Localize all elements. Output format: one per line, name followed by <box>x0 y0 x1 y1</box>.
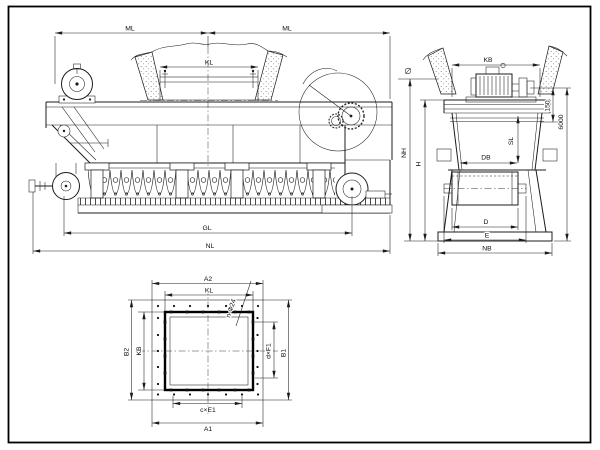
holes-callout: n-Φ24 <box>225 298 238 318</box>
dim-label-a2: A2 <box>204 276 213 283</box>
drawing-border <box>9 7 591 443</box>
dim-label-kb-plan: KB <box>136 346 143 356</box>
dim-label-sl: SL <box>508 137 515 146</box>
hopper-side <box>131 43 287 100</box>
top-extension-lines <box>152 280 263 312</box>
dim-label-gl: GL <box>202 225 211 232</box>
dim-label-ml-right: ML <box>282 26 292 33</box>
dim-label-dxf1: d×F1 <box>266 343 273 359</box>
dim-label-nl: NL <box>206 243 215 250</box>
dim-label-kl-plan: KL <box>205 288 214 295</box>
dim-label-b2: B2 <box>124 348 131 357</box>
eyebolt-icon <box>501 63 505 67</box>
ml-extension-lines <box>55 36 390 99</box>
kl-extension-lines <box>160 70 258 77</box>
end-view: KB SL DB <box>398 46 571 256</box>
motor <box>466 63 536 102</box>
dim-label-ml-left: ML <box>125 26 135 33</box>
skirt-board <box>160 70 258 100</box>
dim-label-a1: A1 <box>204 426 213 433</box>
plan-view: A2 KL B2 KB d×F1 B1 c×E1 A1 n-Φ24 <box>124 276 293 433</box>
dim-label-nb: NB <box>482 246 492 253</box>
dim-label-db: DB <box>481 155 491 162</box>
dim-label-kb: KB <box>483 57 493 64</box>
drive-sprocket <box>299 68 377 151</box>
nb-extension-lines <box>438 243 552 256</box>
drawing-page: ML ML KL <box>0 0 600 450</box>
dim-label-h: H <box>416 161 423 166</box>
left-extension-lines <box>128 300 165 400</box>
dim-label-nh: NH <box>401 148 408 158</box>
machine-body-end <box>437 100 557 170</box>
dim-label-150: 150 <box>545 100 552 112</box>
garland-idlers <box>88 168 335 198</box>
side-view: ML ML KL <box>29 26 392 255</box>
dim-label-b1: B1 <box>281 349 288 358</box>
engineering-drawing: ML ML KL <box>0 0 600 450</box>
dim-label-kl: KL <box>205 60 214 67</box>
dim-label-6000: 6000 <box>558 114 565 129</box>
drum <box>444 172 526 205</box>
dim-label-e: E <box>485 233 490 240</box>
holes-leader-line <box>236 281 251 326</box>
dim-label-cxe1: c×E1 <box>200 407 216 414</box>
tail-pulley <box>29 163 80 200</box>
dim-label-d: D <box>484 219 489 226</box>
